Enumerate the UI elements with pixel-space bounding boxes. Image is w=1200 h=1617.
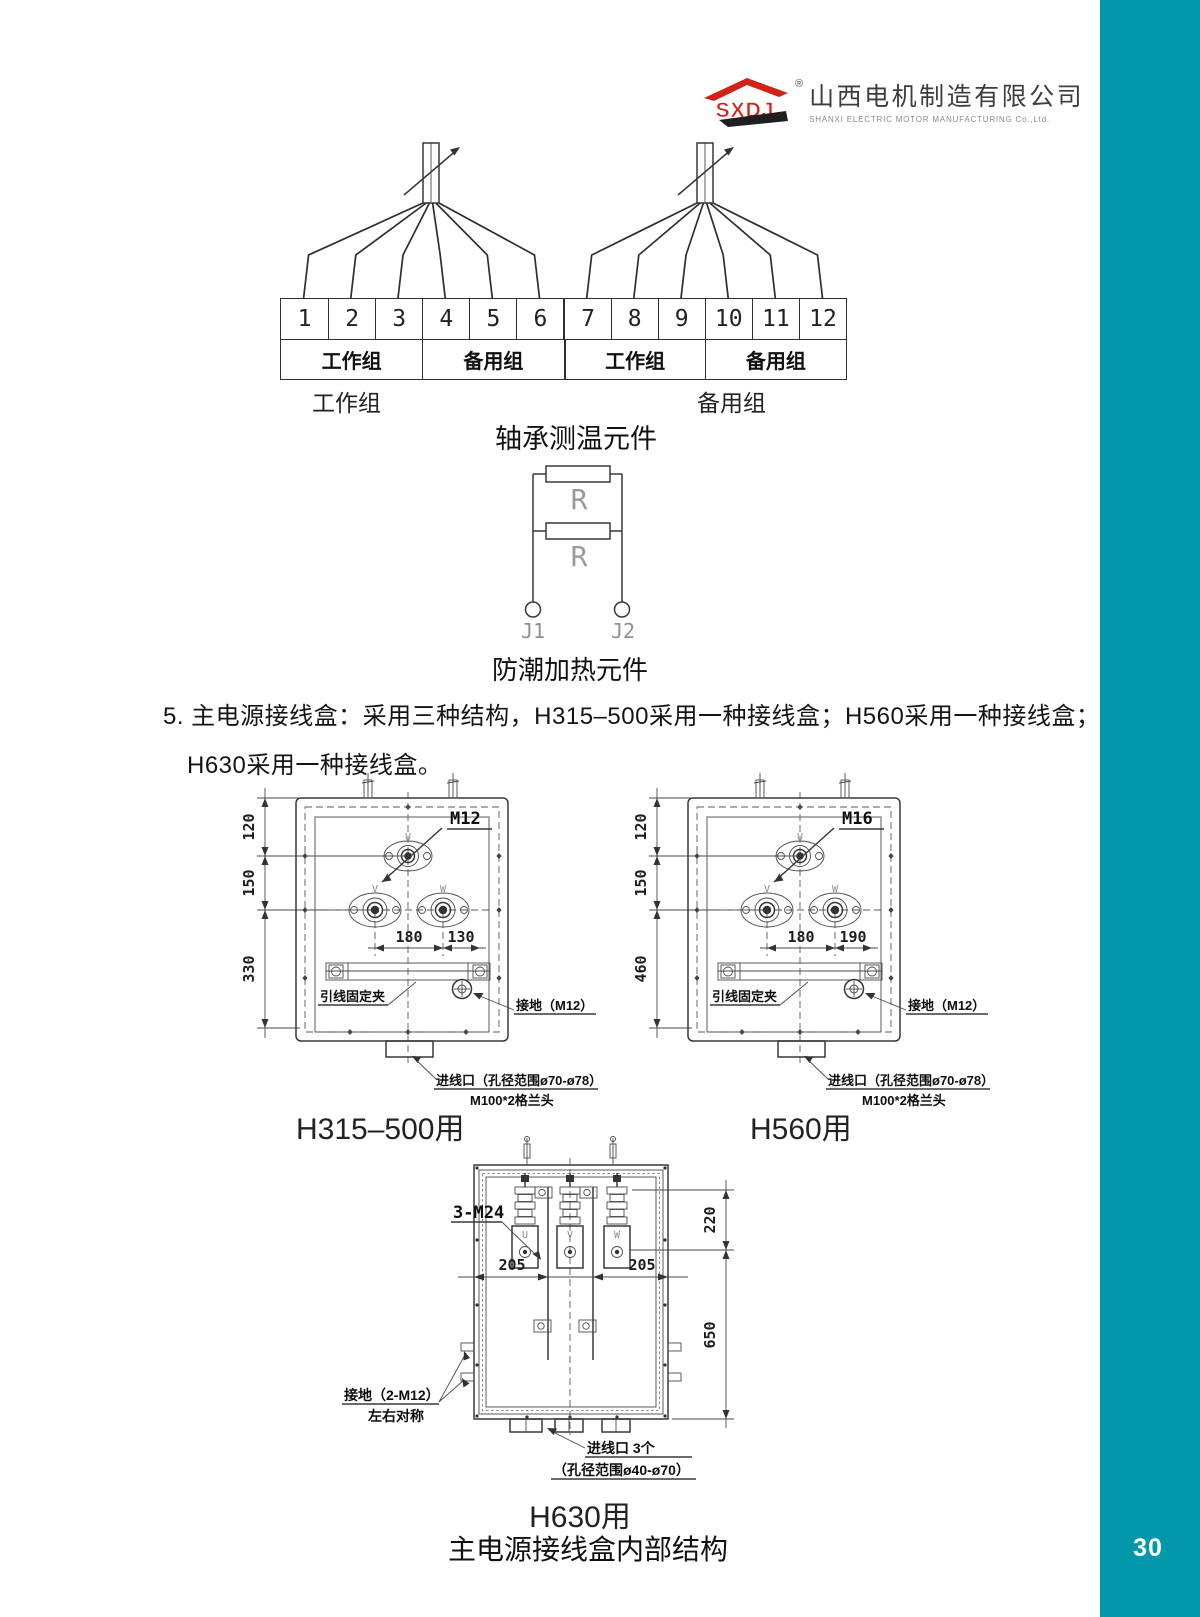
dim-220: 220 [701,1206,719,1233]
w-terminal-label: W [614,1230,621,1241]
dim-190: 190 [839,928,866,946]
logo-roof-shape [704,78,788,101]
terminal-cell: 8 [611,299,658,339]
w-terminal-label: W [832,884,839,895]
dim-650: 650 [701,1321,719,1348]
dim-330: 330 [240,955,258,982]
dim-180: 180 [787,928,814,946]
u-terminal-label: U [797,832,803,843]
terminal-cell: 7 [563,299,610,339]
company-logo: SXDJ ® 山西电机制造有限公司 SHANXI ELECTRIC MOTOR … [700,76,1084,130]
section5-text-line1: 5. 主电源接线盒：采用三种结构，H315–500采用一种接线盒；H560采用一… [163,696,1100,731]
v-terminal-label: V [372,884,378,895]
group-cell: 工作组 [564,340,705,379]
terminal-cell: 4 [422,299,469,339]
v-terminal-label: V [567,1230,573,1241]
dim-205-left: 205 [498,1256,525,1274]
document-page: 30 SXDJ ® 山西电机制造有限公司 SHANXI ELECTRIC MOT… [0,0,1200,1617]
clamp-label: 引线固定夹 [712,989,777,1004]
company-name-en: SHANXI ELECTRIC MOTOR MANUFACTURING Co.,… [809,115,1084,124]
ground-label: 接地（M12） [908,998,985,1013]
terminal-j1-label: J1 [521,619,545,643]
ground-label: 接地（M12） [516,998,593,1013]
terminal-j2-label: J2 [611,619,635,643]
terminal-cell: 12 [799,299,846,339]
u-terminal-label: U [522,1230,528,1241]
insulator-w: W [604,1173,630,1268]
v-terminal-label: V [764,884,770,895]
ground-symmetry-label: 左右对称 [367,1408,424,1424]
entry-count-label: 进线口 3个 [587,1440,656,1456]
bolt-size-label: M12 [450,809,481,829]
box2-caption: H560用 [750,1104,852,1148]
dim-460: 460 [632,955,650,982]
resistor2-label: R [571,540,588,573]
terminal-cell: 5 [469,299,516,339]
entry-label: 进线口（孔径范围ø70-ø78） [436,1073,602,1088]
work-group-label: 工作组 [312,384,381,418]
terminal-cell: 11 [752,299,799,339]
ground-label: 接地（2-M12） [344,1387,440,1403]
resistor1-label: R [571,483,588,516]
u-terminal-label: U [405,832,411,843]
dim-120: 120 [240,813,258,840]
terminal-cell: 6 [516,299,563,339]
terminal-group-row: 工作组 备用组 工作组 备用组 [280,340,847,380]
heater-caption: 防潮加热元件 [450,650,690,687]
dim-150: 150 [240,869,258,896]
group-cell: 备用组 [422,340,563,379]
company-name-cn: 山西电机制造有限公司 [809,84,1084,112]
junction-box-h630-drawing: U V W 3-M24 [340,1130,760,1505]
junction-box-h315-500-drawing: 120 150 330 U M12 [230,758,600,1110]
terminal-cell: 9 [658,299,705,339]
registered-mark: ® [795,78,803,90]
footer-caption: 主电源接线盒内部结构 [413,1528,763,1568]
terminal-cell: 3 [375,299,422,339]
bolt-callout: 3-M24 [453,1203,504,1223]
terminal-table: 1 2 3 4 5 6 7 8 9 10 11 12 工作组 备用组 工作组 备… [280,298,847,380]
dim-180: 180 [395,928,422,946]
dim-150: 150 [632,869,650,896]
group-cell: 备用组 [705,340,846,379]
w-terminal-label: W [440,884,447,895]
entry-size-label: （孔径范围ø40-ø70） [553,1462,690,1478]
terminal-wiring-diagram [260,135,860,303]
spare-group-label: 备用组 [697,384,766,418]
accent-sidebar [1100,0,1200,1617]
group-cell: 工作组 [281,340,422,379]
page-number: 30 [1124,1534,1172,1563]
junction-box-h560-drawing: 120 150 460 U M16 V [622,758,992,1110]
terminal-cell: 1 [281,299,328,339]
terminal-number-row: 1 2 3 4 5 6 7 8 9 10 11 12 [280,298,847,340]
terminal-cell: 10 [705,299,752,339]
dim-120: 120 [632,813,650,840]
heater-circuit-diagram: R R J1 J2 [470,452,730,650]
dim-130: 130 [447,928,474,946]
gland-label: M100*2格兰头 [470,1093,554,1108]
gland-label: M100*2格兰头 [862,1093,946,1108]
clamp-label: 引线固定夹 [320,989,385,1004]
entry-label: 进线口（孔径范围ø70-ø78） [828,1073,994,1088]
insulator-v: V [557,1173,583,1268]
bearing-sensor-caption: 轴承测温元件 [456,417,696,456]
terminal-cell: 2 [328,299,375,339]
dim-205-right: 205 [628,1256,655,1274]
bolt-size-label: M16 [842,809,873,829]
logo-mark: SXDJ [700,76,792,130]
